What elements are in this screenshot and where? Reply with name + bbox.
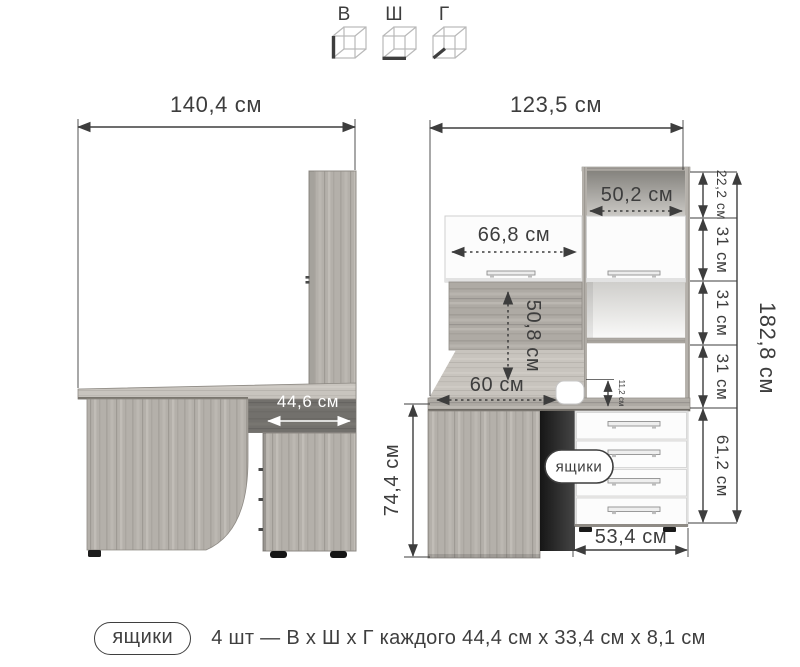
right-cabinet-door bbox=[587, 216, 686, 282]
height-cube-icon bbox=[333, 27, 366, 59]
grommet-height-label: 11,2 см bbox=[617, 380, 626, 407]
side-view: 140,4 см 44,6 см bbox=[78, 92, 356, 558]
side-view-leg-panel bbox=[87, 399, 248, 557]
shelf-height-label: 31 см bbox=[713, 290, 732, 337]
side-width-label: 140,4 см bbox=[170, 92, 262, 117]
shelf-height-label: 22,2 см bbox=[714, 170, 729, 220]
back-panel bbox=[449, 282, 582, 350]
top-shelf-width-label: 50,2 см bbox=[601, 184, 673, 206]
drawer bbox=[577, 498, 687, 525]
furniture-dimension-sheet: В Ш Г bbox=[0, 0, 800, 667]
dim-total-height: 182,8 см bbox=[737, 173, 780, 522]
pedestal-foot bbox=[270, 551, 287, 558]
drawer-unit-height-label: 61,2 см bbox=[713, 435, 732, 497]
drawer-handle bbox=[608, 450, 660, 455]
pedestal-foot bbox=[579, 527, 592, 532]
back-panel-height-label: 50,8 см bbox=[522, 300, 544, 372]
drawer-handle bbox=[608, 422, 660, 427]
dim-right-chain: 22,2 см 31 см 31 см 31 см 61,2 см bbox=[688, 170, 737, 523]
furniture-dimensions-drawing: В Ш Г bbox=[0, 0, 800, 612]
shelf-height-label: 31 см bbox=[713, 354, 732, 401]
pedestal-depth-label: 44,6 см bbox=[277, 392, 339, 411]
front-leg-panel bbox=[428, 411, 540, 558]
legend-height-label: В bbox=[338, 4, 351, 25]
desk-foot bbox=[88, 550, 101, 557]
middle-open-shelf bbox=[587, 282, 685, 340]
drawers-callout: ящики bbox=[545, 450, 613, 483]
front-view: ящики 123,5 см 50,2 см 66,8 см 50,8 см 6… bbox=[381, 92, 780, 558]
drawer bbox=[577, 413, 687, 440]
legend-depth-label: Г bbox=[439, 4, 449, 25]
pedestal-foot bbox=[330, 551, 347, 558]
shelf-height-label: 31 см bbox=[713, 227, 732, 274]
drawers-badge: ящики bbox=[94, 622, 191, 655]
drawer-handle bbox=[608, 507, 660, 512]
drawer-handle-side-mark bbox=[259, 468, 264, 471]
drawers-note-text: 4 шт — В х Ш х Г каждого 44,4 см х 33,4 … bbox=[211, 627, 705, 650]
door-handle bbox=[487, 271, 535, 275]
dim-desk-height: 74,4 см bbox=[381, 404, 430, 557]
door-handle-side-mark bbox=[306, 276, 310, 279]
width-cube-icon bbox=[383, 27, 417, 58]
drawer-handle bbox=[608, 479, 660, 484]
total-height-label: 182,8 см bbox=[755, 302, 780, 394]
drawer-unit-width-label: 53,4 см bbox=[595, 526, 667, 548]
side-view-pedestal bbox=[259, 433, 357, 558]
door-handle bbox=[608, 271, 660, 275]
cable-grommet bbox=[556, 381, 584, 404]
drawers-note: ящики 4 шт — В х Ш х Г каждого 44,4 см х… bbox=[0, 610, 800, 667]
desk-height-label: 74,4 см bbox=[381, 444, 403, 516]
door-width-label: 66,8 см bbox=[478, 224, 550, 246]
shelf-board bbox=[587, 338, 685, 343]
desk-depth-label: 60 см bbox=[470, 374, 525, 396]
front-width-label: 123,5 см bbox=[510, 92, 602, 117]
drawers-callout-label: ящики bbox=[556, 459, 603, 476]
dimension-legend: В Ш Г bbox=[333, 4, 466, 59]
depth-cube-icon bbox=[433, 27, 466, 58]
legend-width-label: Ш bbox=[385, 4, 402, 25]
